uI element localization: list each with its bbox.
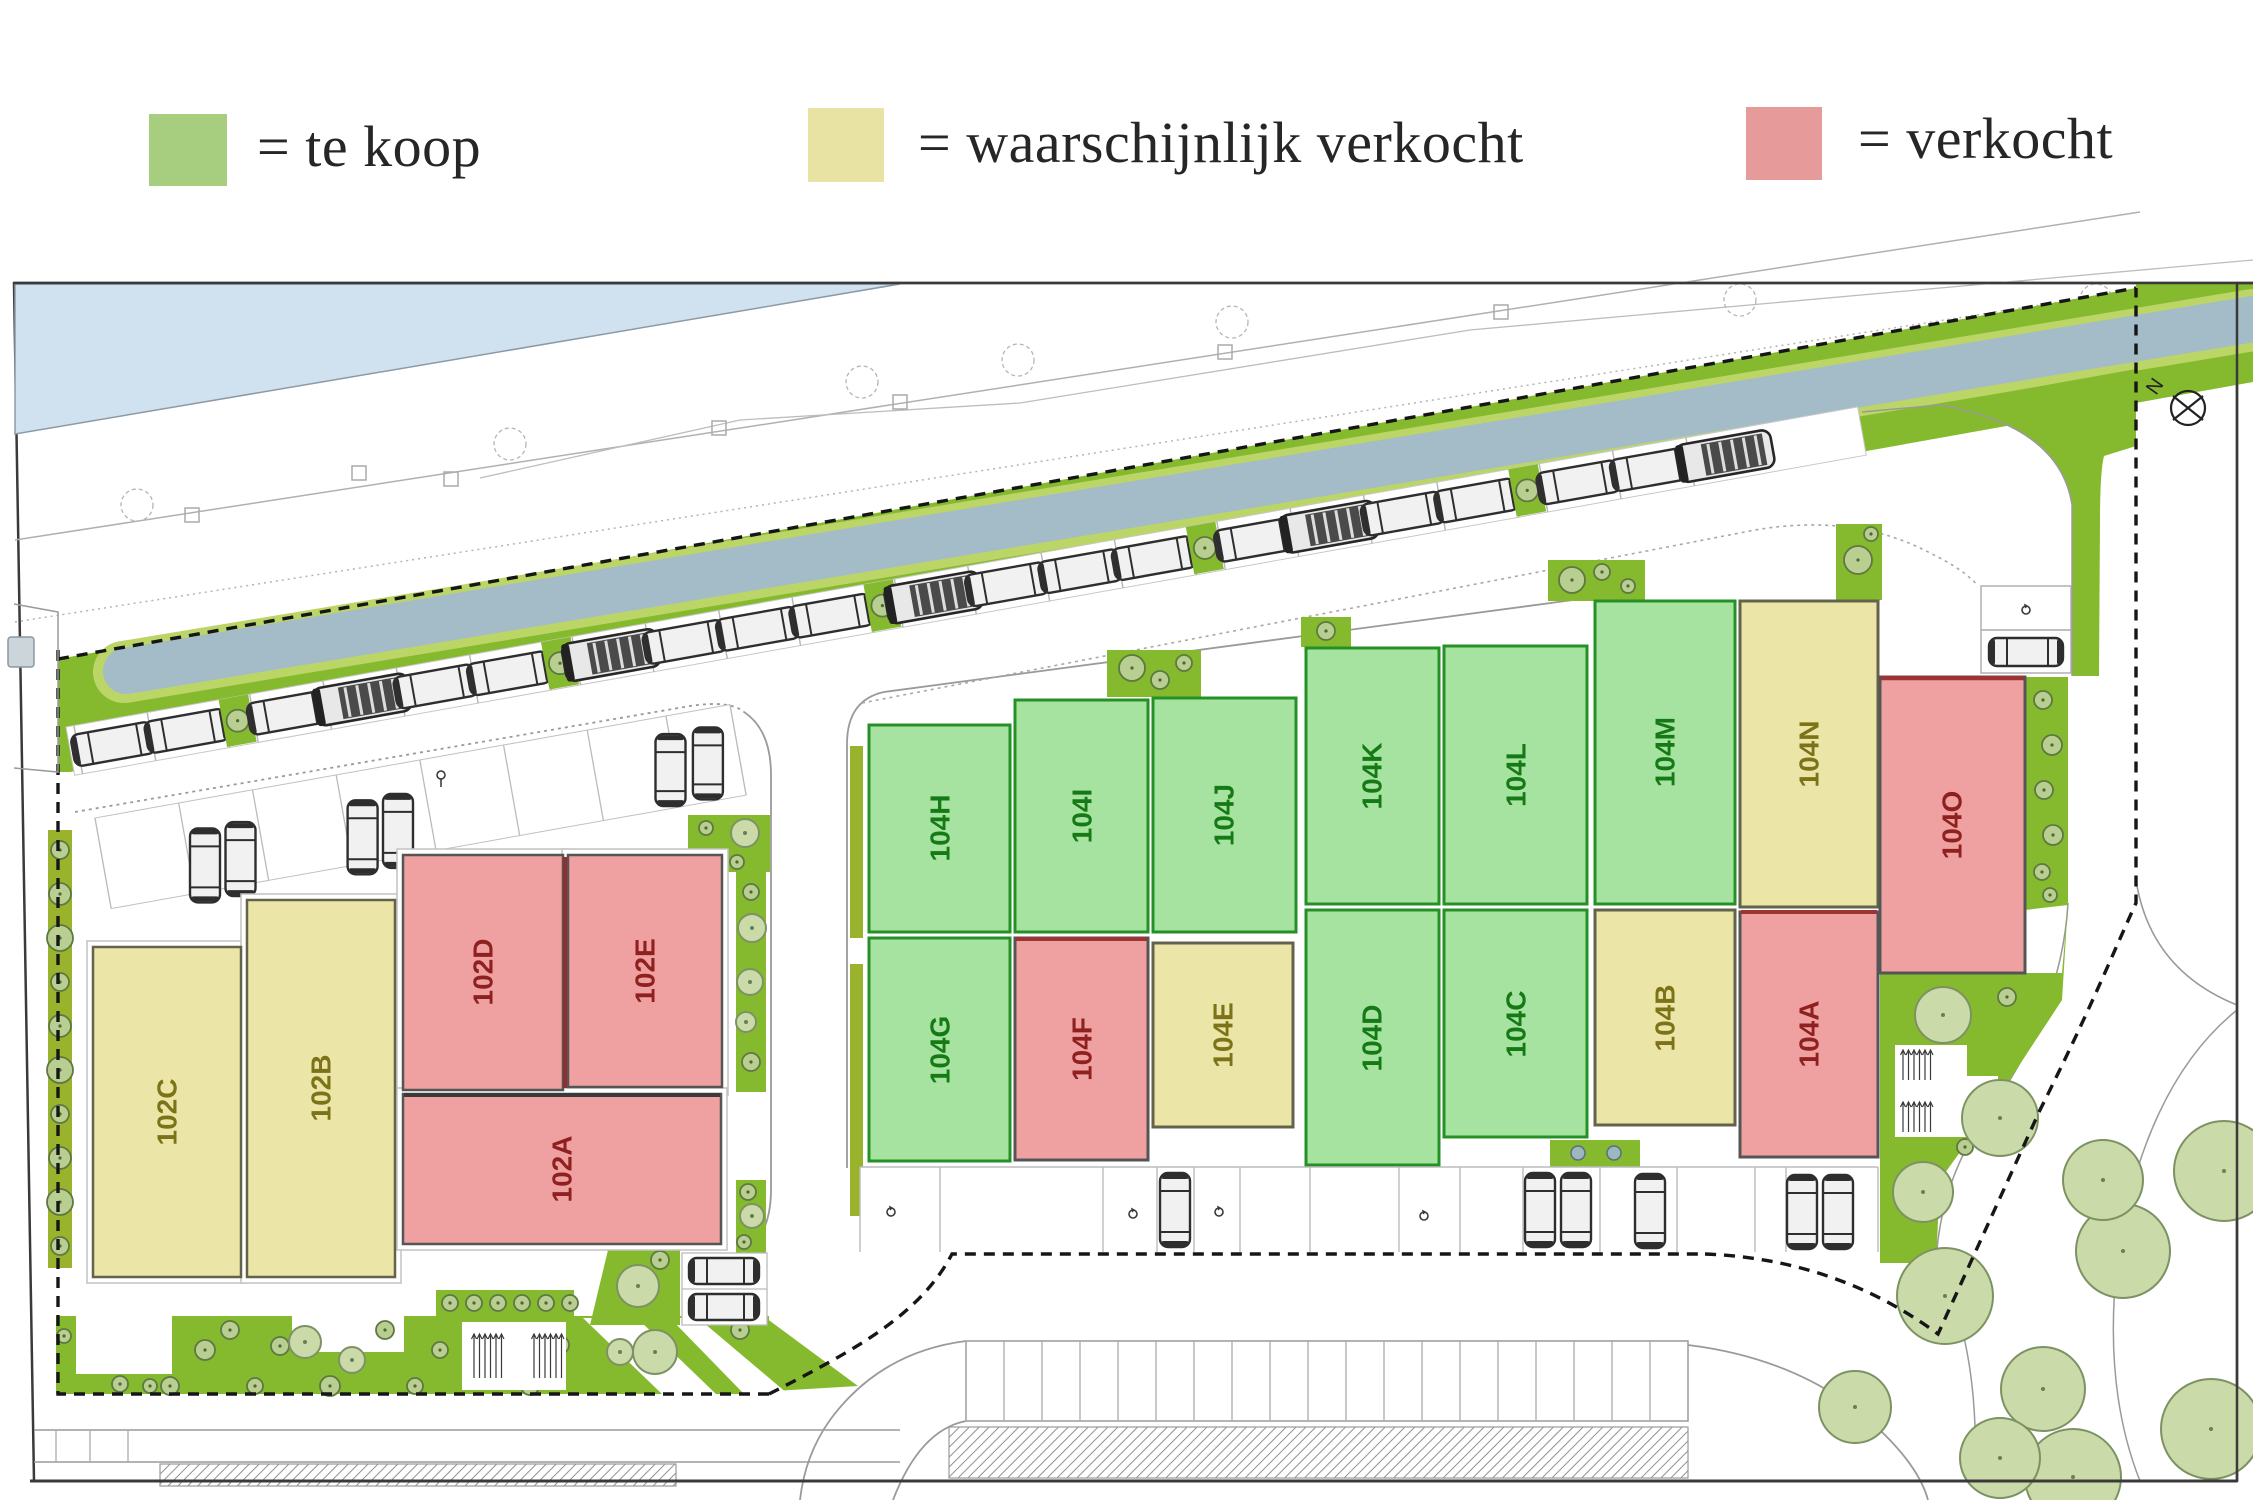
svg-text:104M: 104M bbox=[1650, 717, 1681, 787]
svg-text:= te koop: = te koop bbox=[257, 114, 481, 179]
svg-text:104N: 104N bbox=[1794, 721, 1825, 788]
svg-text:104O: 104O bbox=[1937, 791, 1968, 860]
svg-text:104I: 104I bbox=[1067, 789, 1098, 844]
svg-text:104G: 104G bbox=[925, 1016, 956, 1085]
svg-text:102B: 102B bbox=[306, 1055, 337, 1122]
svg-text:104D: 104D bbox=[1357, 1005, 1388, 1072]
svg-text:102E: 102E bbox=[630, 938, 661, 1003]
svg-text:= waarschijnlijk verkocht: = waarschijnlijk verkocht bbox=[918, 110, 1524, 175]
svg-text:104B: 104B bbox=[1650, 985, 1681, 1052]
svg-text:104H: 104H bbox=[925, 795, 956, 862]
svg-text:= verkocht: = verkocht bbox=[1858, 106, 2113, 171]
svg-text:104F: 104F bbox=[1067, 1017, 1098, 1081]
svg-text:102C: 102C bbox=[152, 1079, 183, 1146]
svg-text:102A: 102A bbox=[547, 1136, 578, 1203]
svg-text:104E: 104E bbox=[1208, 1002, 1239, 1067]
svg-text:104K: 104K bbox=[1357, 743, 1388, 810]
svg-text:102D: 102D bbox=[468, 939, 499, 1006]
svg-text:104C: 104C bbox=[1501, 991, 1532, 1058]
svg-text:104A: 104A bbox=[1794, 1001, 1825, 1068]
svg-text:104L: 104L bbox=[1501, 743, 1532, 807]
svg-text:104J: 104J bbox=[1209, 784, 1240, 846]
